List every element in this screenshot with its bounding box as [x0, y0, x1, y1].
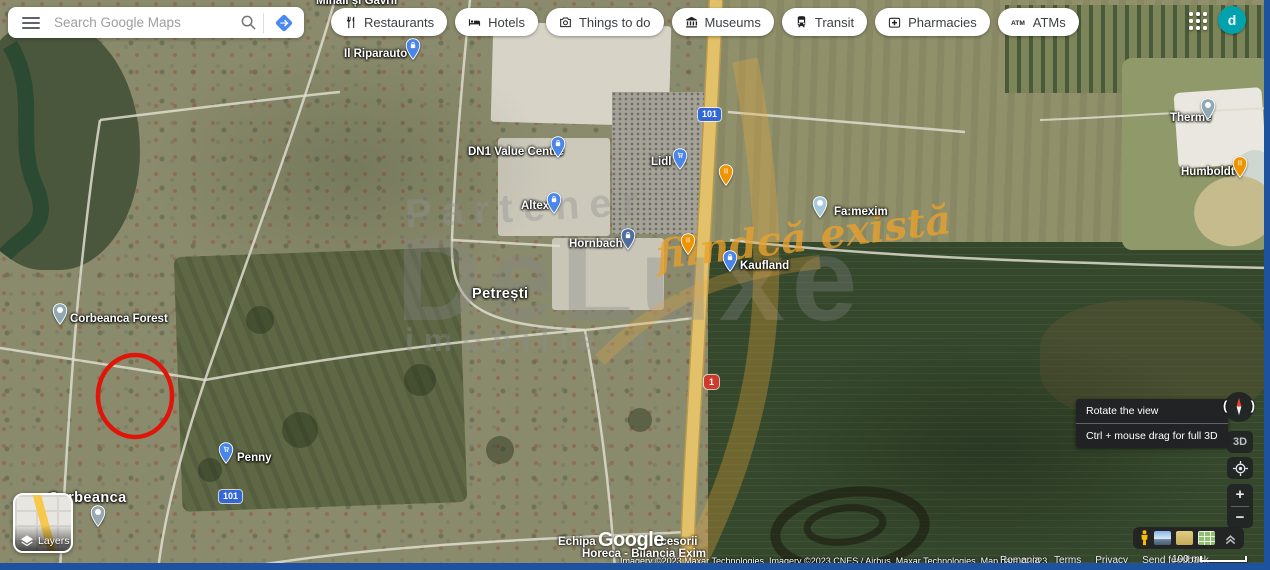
chip-label: Things to do [579, 15, 651, 30]
zoom-out-button[interactable]: − [1227, 507, 1253, 529]
museum-icon [685, 16, 698, 29]
directions-icon[interactable] [264, 12, 304, 34]
compass-control[interactable]: ( ) [1222, 392, 1256, 422]
compass-needle-icon [1235, 397, 1243, 421]
rotate-left-icon[interactable]: ( [1223, 398, 1227, 413]
imagery-thumbnail-map[interactable] [1198, 531, 1215, 545]
map-pin-humboldt[interactable] [1232, 156, 1248, 178]
chip-label: Museums [705, 15, 761, 30]
my-location-button[interactable] [1227, 457, 1253, 479]
map-pin-lidl[interactable] [672, 148, 688, 170]
chip-pharmacies[interactable]: Pharmacies [875, 8, 990, 36]
map-label-il-riparauto[interactable]: Il Riparauto [344, 48, 407, 60]
hotel-icon [468, 16, 481, 29]
chip-hotels[interactable]: Hotels [455, 8, 538, 36]
chip-transit[interactable]: Transit [782, 8, 867, 36]
account-avatar[interactable]: d [1218, 6, 1246, 34]
map-label-penny[interactable]: Penny [237, 452, 272, 464]
map-label-mihail-i-gavril[interactable]: Mihail și Gavril [316, 0, 397, 7]
attractions-icon [559, 16, 572, 29]
map-pin-kaufland[interactable] [722, 250, 738, 272]
rotate-right-icon[interactable]: ) [1251, 398, 1255, 413]
restaurant-icon [344, 16, 357, 29]
layers-icon [20, 535, 34, 547]
search-input[interactable] [52, 14, 233, 31]
transit-icon [795, 16, 808, 29]
chip-restaurants[interactable]: Restaurants [331, 8, 447, 36]
map-label-kaufland[interactable]: Kaufland [740, 260, 789, 272]
map-label-fa-mexim[interactable]: Fa:mexim [834, 206, 888, 218]
map-label-corbeanca-forest[interactable]: Corbeanca Forest [70, 313, 168, 325]
chip-label: Pharmacies [908, 15, 977, 30]
route-shield-101: 101 [219, 490, 242, 503]
map-pin-penny[interactable] [218, 442, 234, 464]
chip-label: Transit [815, 15, 854, 30]
svg-text:ATM: ATM [1011, 20, 1025, 27]
chip-things-to-do[interactable]: Things to do [546, 8, 664, 36]
window-edge [0, 563, 1270, 570]
chip-atms[interactable]: ATMATMs [998, 8, 1079, 36]
scale-bar [1200, 556, 1247, 562]
map-pin-altex[interactable] [546, 192, 562, 214]
layers-label: Layers [38, 535, 70, 547]
rotate-tooltip-title: Rotate the view [1076, 399, 1228, 423]
rotate-tooltip-subtitle: Ctrl + mouse drag for full 3D [1076, 424, 1228, 448]
imagery-thumbnail-sky[interactable] [1154, 531, 1171, 545]
map-pin-il-riparauto[interactable] [405, 38, 421, 60]
route-shield-1: 1 [704, 375, 719, 389]
zoom-in-button[interactable]: + [1227, 484, 1253, 506]
window-edge [1264, 0, 1270, 570]
layers-control[interactable]: Layers [13, 493, 73, 553]
map-pin-fa-mexim[interactable] [812, 196, 828, 218]
collapse-chevron-icon[interactable] [1224, 532, 1237, 545]
zoom-control: + − [1227, 484, 1253, 528]
chip-museums[interactable]: Museums [672, 8, 774, 36]
route-shield-101: 101 [698, 108, 721, 121]
3d-button[interactable]: 3D [1227, 431, 1253, 453]
map-pin-dn1-value-centre[interactable] [550, 136, 566, 158]
chip-label: ATMs [1033, 15, 1066, 30]
google-maps-window: Partener DeLuxe fiindcă există imobiliar… [0, 0, 1270, 570]
chip-label: Hotels [488, 15, 525, 30]
map-label-petre-ti[interactable]: Petrești [472, 286, 528, 302]
business-label-part[interactable]: Echipa [558, 536, 596, 548]
map-label-altex[interactable]: Altex [521, 200, 549, 212]
map-label-lidl[interactable]: Lidl [651, 156, 671, 168]
map-pin-corbeanca[interactable] [90, 505, 106, 527]
atm-icon: ATM [1011, 18, 1026, 27]
search-box [8, 7, 304, 38]
imagery-thumbnail-terrain[interactable] [1176, 531, 1193, 545]
map-labels-layer: Mihail și GavrilIl RiparautoDN1 Value Ce… [0, 0, 1270, 570]
pharmacy-icon [888, 16, 901, 29]
search-icon[interactable] [233, 14, 263, 31]
map-pin-restaurant[interactable] [718, 164, 734, 186]
map-pin-therme[interactable] [1200, 98, 1216, 120]
pegman-icon[interactable] [1140, 530, 1149, 546]
map-pin-hornbach[interactable] [620, 228, 636, 250]
map-label-hornbach[interactable]: Hornbach [569, 238, 623, 250]
rotate-tooltip: Rotate the view Ctrl + mouse drag for fu… [1076, 399, 1228, 448]
map-pin-corbeanca-forest[interactable] [52, 303, 68, 325]
google-logo[interactable]: Google [598, 529, 664, 552]
google-apps-icon[interactable] [1189, 12, 1207, 30]
chip-label: Restaurants [364, 15, 434, 30]
menu-icon[interactable] [22, 17, 40, 29]
map-label-humboldt[interactable]: Humboldt [1181, 166, 1235, 178]
streetview-bar [1133, 527, 1244, 549]
map-pin-restaurant[interactable] [680, 233, 696, 255]
category-chips: RestaurantsHotelsThings to doMuseumsTran… [331, 8, 1079, 36]
